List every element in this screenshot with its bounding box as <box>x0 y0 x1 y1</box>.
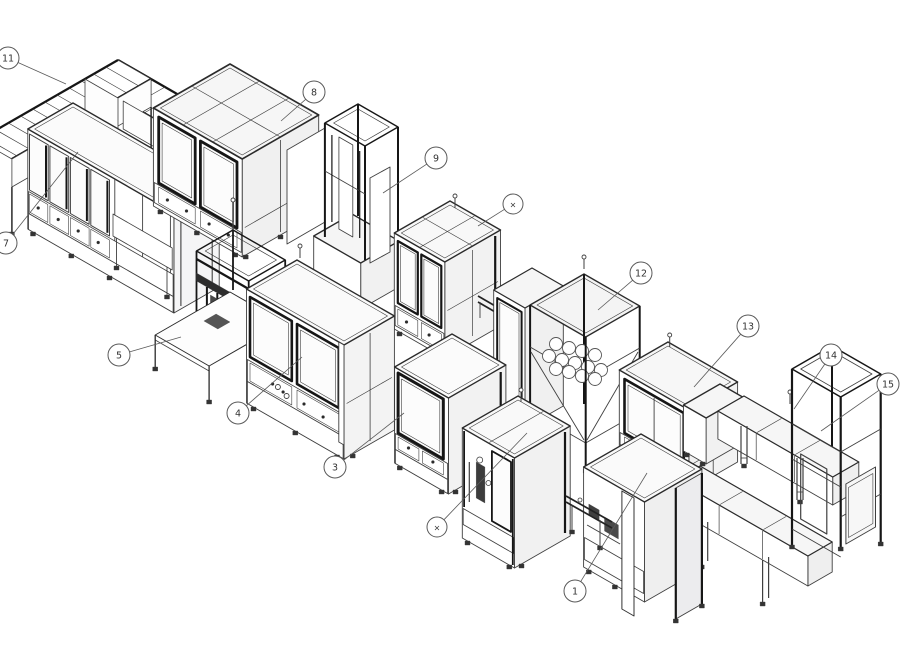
callout-label: 1 <box>572 586 578 597</box>
callout-c9: 9 <box>383 147 447 193</box>
module-1-machine <box>566 434 704 623</box>
callout-label: × <box>510 200 517 209</box>
callout-label: 3 <box>332 462 338 473</box>
callout-label: 7 <box>3 238 9 249</box>
callout-label: 8 <box>311 87 317 98</box>
diagram-canvas: 11789×12131415543×1 <box>0 0 900 650</box>
callout-label: 9 <box>433 153 439 164</box>
callout-label: 11 <box>2 53 14 64</box>
callout-label: 5 <box>116 350 122 361</box>
callout-label: 14 <box>825 350 837 361</box>
callout-c11: 11 <box>0 47 66 84</box>
callout-label: 12 <box>635 268 647 279</box>
callout-label: 4 <box>235 408 241 419</box>
isometric-line-drawing: 11789×12131415543×1 <box>0 0 900 650</box>
callout-label: 13 <box>742 321 754 332</box>
callout-label: 15 <box>882 379 894 390</box>
callout-label: × <box>434 523 441 532</box>
